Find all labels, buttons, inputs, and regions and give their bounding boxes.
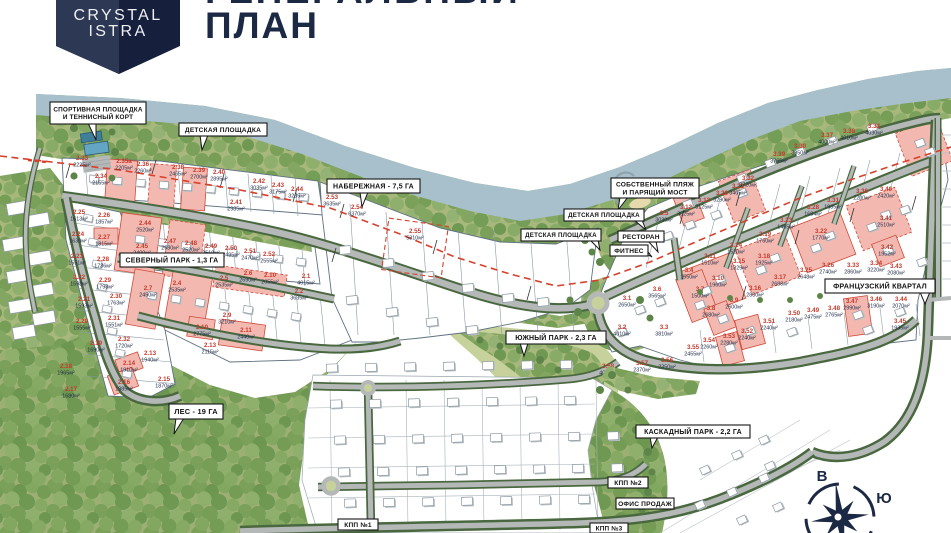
svg-text:СПОРТИВНАЯ ПЛОЩАДКА: СПОРТИВНАЯ ПЛОЩАДКА xyxy=(53,106,143,113)
svg-text:3.12: 3.12 xyxy=(680,204,693,211)
svg-text:ЛЕС - 19 ГА: ЛЕС - 19 ГА xyxy=(174,407,218,416)
svg-text:ДЕТСКАЯ ПЛОЩАДКА: ДЕТСКАЯ ПЛОЩАДКА xyxy=(185,127,261,134)
svg-text:2740м²: 2740м² xyxy=(819,270,837,276)
svg-text:2465м²: 2465м² xyxy=(169,172,187,178)
svg-text:5310м²: 5310м² xyxy=(406,236,424,242)
svg-text:2260м²: 2260м² xyxy=(700,345,718,351)
svg-text:2.38: 2.38 xyxy=(172,164,185,171)
svg-text:2470м²: 2470м² xyxy=(241,256,259,262)
svg-text:2.5: 2.5 xyxy=(220,275,229,282)
svg-text:2.21: 2.21 xyxy=(78,296,91,303)
svg-text:И ПАРЯЩИЙ МОСТ: И ПАРЯЩИЙ МОСТ xyxy=(622,187,687,196)
svg-text:1680м²: 1680м² xyxy=(62,394,80,400)
svg-text:3.6: 3.6 xyxy=(653,286,662,293)
svg-text:2.51: 2.51 xyxy=(244,248,257,255)
svg-text:3.16: 3.16 xyxy=(749,285,762,292)
svg-text:3.30: 3.30 xyxy=(794,143,807,150)
svg-text:1965м²: 1965м² xyxy=(57,371,75,377)
svg-text:2.44: 2.44 xyxy=(139,220,152,227)
svg-text:1940м²: 1940м² xyxy=(141,358,159,364)
svg-text:1720м²: 1720м² xyxy=(115,344,133,350)
svg-text:3.28: 3.28 xyxy=(807,204,820,211)
svg-text:2.44: 2.44 xyxy=(291,186,304,193)
svg-text:3.5: 3.5 xyxy=(660,210,669,217)
svg-text:2985м²: 2985м² xyxy=(227,207,245,213)
svg-text:2700м²: 2700м² xyxy=(190,175,208,181)
svg-text:3.52: 3.52 xyxy=(741,328,754,335)
svg-text:2420м²: 2420м² xyxy=(877,194,895,200)
svg-text:2680м²: 2680м² xyxy=(702,313,720,319)
svg-text:2.7: 2.7 xyxy=(144,285,153,292)
svg-text:ISTRA: ISTRA xyxy=(88,23,147,40)
svg-text:КПП №3: КПП №3 xyxy=(596,525,623,532)
svg-text:2.13: 2.13 xyxy=(144,350,157,357)
svg-text:3.36: 3.36 xyxy=(856,188,869,195)
svg-text:2440м²: 2440м² xyxy=(237,335,255,341)
svg-text:3.17: 3.17 xyxy=(774,274,787,281)
svg-text:3.47: 3.47 xyxy=(846,298,859,305)
svg-text:1857м²: 1857м² xyxy=(95,220,113,226)
svg-text:2.50: 2.50 xyxy=(225,245,238,252)
svg-text:РЕСТОРАН: РЕСТОРАН xyxy=(622,234,659,241)
svg-text:3210м²: 3210м² xyxy=(218,320,236,326)
svg-text:3635м²: 3635м² xyxy=(323,202,341,208)
svg-text:2200м²: 2200м² xyxy=(853,196,871,202)
svg-text:КПП №2: КПП №2 xyxy=(614,480,642,487)
svg-text:3.19: 3.19 xyxy=(759,231,772,238)
svg-text:3.51: 3.51 xyxy=(763,318,776,325)
svg-text:2.40: 2.40 xyxy=(213,169,226,176)
svg-text:2055м²: 2055м² xyxy=(261,280,279,286)
svg-text:3.13: 3.13 xyxy=(698,197,711,204)
svg-text:3.34: 3.34 xyxy=(870,260,883,267)
svg-text:1690м²: 1690м² xyxy=(87,348,105,354)
svg-text:4010м²: 4010м² xyxy=(613,332,631,338)
svg-text:3.18: 3.18 xyxy=(758,253,771,260)
svg-text:4015м²: 4015м² xyxy=(297,281,315,287)
svg-text:ЮЖНЫЙ ПАРК - 2,3 ГА: ЮЖНЫЙ ПАРК - 2,3 ГА xyxy=(515,333,597,342)
svg-text:1870м²: 1870м² xyxy=(155,384,173,390)
svg-text:2450м²: 2450м² xyxy=(139,293,157,299)
svg-text:4010м²: 4010м² xyxy=(840,136,858,142)
svg-text:2.35а: 2.35а xyxy=(116,158,132,165)
svg-text:3235м²: 3235м² xyxy=(288,194,306,200)
svg-text:3.46: 3.46 xyxy=(870,296,883,303)
svg-text:3765м²: 3765м² xyxy=(770,159,788,165)
svg-text:3405м²: 3405м² xyxy=(729,191,747,197)
svg-text:3.2: 3.2 xyxy=(618,324,627,331)
svg-text:2.33: 2.33 xyxy=(76,155,89,162)
svg-text:2.11: 2.11 xyxy=(240,327,252,334)
svg-text:3.55: 3.55 xyxy=(687,344,700,351)
svg-text:1555м²: 1555м² xyxy=(73,326,91,332)
svg-text:2690м²: 2690м² xyxy=(239,278,257,284)
svg-text:3.54: 3.54 xyxy=(703,337,716,344)
svg-text:3.37: 3.37 xyxy=(821,132,834,139)
svg-text:3.1: 3.1 xyxy=(623,295,632,302)
svg-text:1736м²: 1736м² xyxy=(94,264,112,270)
svg-text:3030м²: 3030м² xyxy=(655,218,673,224)
svg-text:2.26: 2.26 xyxy=(98,212,111,219)
svg-text:2.53: 2.53 xyxy=(326,194,339,201)
svg-text:2775м²: 2775м² xyxy=(193,332,211,338)
svg-text:2650м²: 2650м² xyxy=(618,303,636,309)
svg-text:2240м²: 2240м² xyxy=(738,336,756,342)
svg-text:1551м²: 1551м² xyxy=(68,261,86,267)
svg-text:2455м²: 2455м² xyxy=(684,352,702,358)
svg-text:3.45: 3.45 xyxy=(894,318,907,325)
svg-text:3.3: 3.3 xyxy=(660,324,669,331)
svg-text:2520м²: 2520м² xyxy=(136,228,154,234)
svg-text:3.39: 3.39 xyxy=(773,151,786,158)
svg-text:1925м²: 1925м² xyxy=(755,261,773,267)
svg-text:2.9: 2.9 xyxy=(223,312,232,319)
svg-text:2895м²: 2895м² xyxy=(210,177,228,183)
svg-text:2688м²: 2688м² xyxy=(771,282,789,288)
svg-text:2350м²: 2350м² xyxy=(658,365,676,371)
svg-text:2280м²: 2280м² xyxy=(720,341,738,347)
svg-text:3.22: 3.22 xyxy=(815,228,828,235)
svg-text:2.15: 2.15 xyxy=(158,376,171,383)
svg-text:1465м²: 1465м² xyxy=(777,225,795,231)
svg-text:2.39: 2.39 xyxy=(193,167,206,174)
svg-text:1815м²: 1815м² xyxy=(95,242,113,248)
svg-text:3.38: 3.38 xyxy=(843,128,856,135)
svg-text:3.43: 3.43 xyxy=(890,263,903,270)
svg-text:3.42: 3.42 xyxy=(881,244,894,251)
svg-text:2260м²: 2260м² xyxy=(134,169,152,175)
svg-text:3.57: 3.57 xyxy=(636,360,649,367)
svg-text:2.4: 2.4 xyxy=(173,280,182,287)
svg-text:СОБСТВЕННЫЙ ПЛЯЖ: СОБСТВЕННЫЙ ПЛЯЖ xyxy=(616,179,694,188)
svg-text:2.22: 2.22 xyxy=(73,274,86,281)
svg-text:3035м²: 3035м² xyxy=(250,186,268,192)
svg-text:3.31: 3.31 xyxy=(827,197,840,204)
svg-text:3565м²: 3565м² xyxy=(648,294,666,300)
svg-text:2.29: 2.29 xyxy=(99,277,112,284)
svg-text:3025м²: 3025м² xyxy=(677,212,695,218)
svg-text:НАБЕРЕЖНАЯ - 7,5 ГА: НАБЕРЕЖНАЯ - 7,5 ГА xyxy=(333,184,414,191)
svg-text:3.10: 3.10 xyxy=(712,275,725,282)
svg-text:2.27: 2.27 xyxy=(98,234,111,241)
svg-text:2510м²: 2510м² xyxy=(877,223,895,229)
svg-text:1985м²: 1985м² xyxy=(115,387,133,393)
svg-text:2.13: 2.13 xyxy=(204,342,217,349)
svg-text:2.23: 2.23 xyxy=(71,253,84,260)
svg-text:2.17: 2.17 xyxy=(65,386,78,393)
svg-text:2080м²: 2080м² xyxy=(887,271,905,277)
svg-text:3.26: 3.26 xyxy=(822,262,835,269)
svg-text:СЕВЕРНЫЙ ПАРК - 1,3 ГА: СЕВЕРНЫЙ ПАРК - 1,3 ГА xyxy=(126,256,219,265)
svg-text:2555м²: 2555м² xyxy=(260,259,278,265)
svg-text:2.41: 2.41 xyxy=(230,199,243,206)
svg-text:3.32: 3.32 xyxy=(742,175,755,182)
svg-text:2155м²: 2155м² xyxy=(92,181,110,187)
svg-text:1325м²: 1325м² xyxy=(730,266,748,272)
svg-text:2475м²: 2475м² xyxy=(804,315,822,321)
svg-text:2115м²: 2115м² xyxy=(201,350,218,356)
svg-text:CRYSTAL: CRYSTAL xyxy=(73,7,162,24)
svg-text:1550м²: 1550м² xyxy=(680,275,698,281)
svg-text:1551м²: 1551м² xyxy=(105,323,123,329)
svg-text:1613м²: 1613м² xyxy=(70,217,88,223)
svg-text:3175м²: 3175м² xyxy=(269,190,287,196)
svg-text:2180м²: 2180м² xyxy=(785,318,803,324)
svg-text:3.33: 3.33 xyxy=(868,123,881,130)
svg-text:2.36: 2.36 xyxy=(137,161,150,168)
svg-text:3.15: 3.15 xyxy=(733,258,746,265)
svg-text:2.48: 2.48 xyxy=(185,240,198,247)
svg-text:2.18: 2.18 xyxy=(60,363,73,370)
svg-text:3635м²: 3635м² xyxy=(290,296,308,302)
svg-text:3.44: 3.44 xyxy=(895,296,908,303)
svg-text:1684м²: 1684м² xyxy=(804,212,822,218)
svg-text:3720м²: 3720м² xyxy=(739,183,757,189)
svg-text:2225м²: 2225м² xyxy=(73,163,91,169)
svg-text:2765м²: 2765м² xyxy=(825,313,843,319)
svg-text:2990м²: 2990м² xyxy=(843,306,861,312)
svg-text:2.10: 2.10 xyxy=(196,324,209,331)
svg-text:2.55: 2.55 xyxy=(409,228,422,235)
svg-text:ДЕТСКАЯ ПЛОЩАДКА: ДЕТСКАЯ ПЛОЩАДКА xyxy=(568,212,640,219)
svg-text:ОФИС ПРОДАЖ: ОФИС ПРОДАЖ xyxy=(618,501,672,508)
svg-text:2580м²: 2580м² xyxy=(161,246,179,252)
svg-text:2.43: 2.43 xyxy=(272,182,285,189)
svg-text:2.1: 2.1 xyxy=(302,273,311,280)
svg-text:2535м²: 2535м² xyxy=(168,288,186,294)
svg-text:1910м²: 1910м² xyxy=(120,368,138,374)
svg-text:1598м²: 1598м² xyxy=(70,282,88,288)
svg-text:3.49: 3.49 xyxy=(807,307,820,314)
svg-text:3.50: 3.50 xyxy=(788,310,801,317)
svg-text:2.24: 2.24 xyxy=(72,231,85,238)
svg-text:3.41: 3.41 xyxy=(880,215,893,222)
svg-text:3.11: 3.11 xyxy=(704,253,716,260)
svg-text:2.47: 2.47 xyxy=(164,238,177,245)
svg-text:2860м²: 2860м² xyxy=(844,270,862,276)
svg-text:1960м²: 1960м² xyxy=(709,283,727,289)
svg-text:2.30: 2.30 xyxy=(110,293,123,300)
svg-text:2240м²: 2240м² xyxy=(760,326,778,332)
svg-text:3.4: 3.4 xyxy=(685,267,694,274)
svg-text:1760м²: 1760м² xyxy=(756,239,774,245)
svg-text:3.25: 3.25 xyxy=(800,267,813,274)
svg-text:3125м²: 3125м² xyxy=(695,205,713,211)
svg-text:2205м²: 2205м² xyxy=(115,166,133,172)
svg-text:ПЛАН: ПЛАН xyxy=(205,5,319,46)
svg-text:2.34: 2.34 xyxy=(95,173,108,180)
svg-text:4000м²: 4000м² xyxy=(818,140,836,146)
svg-text:2.16: 2.16 xyxy=(118,379,131,386)
svg-text:3.23: 3.23 xyxy=(780,217,793,224)
svg-text:2.42: 2.42 xyxy=(253,178,266,185)
svg-text:2.28: 2.28 xyxy=(97,256,110,263)
svg-text:2.6: 2.6 xyxy=(244,270,253,277)
svg-text:3290м²: 3290м² xyxy=(713,198,731,204)
svg-text:1935м²: 1935м² xyxy=(891,326,909,332)
svg-text:В: В xyxy=(817,468,828,485)
svg-text:ДЕТСКАЯ ПЛОЩАДКА: ДЕТСКАЯ ПЛОЩАДКА xyxy=(525,232,597,239)
svg-text:1593м²: 1593м² xyxy=(75,304,93,310)
svg-text:2.2: 2.2 xyxy=(295,288,304,295)
svg-text:ФРАНЦУЗСКИЙ КВАРТАЛ: ФРАНЦУЗСКИЙ КВАРТАЛ xyxy=(833,282,927,291)
svg-text:3850м²: 3850м² xyxy=(791,151,809,157)
svg-text:3810м²: 3810м² xyxy=(655,332,673,338)
svg-text:2535м²: 2535м² xyxy=(215,283,233,289)
svg-text:2.32: 2.32 xyxy=(118,336,131,343)
svg-text:3.40: 3.40 xyxy=(880,186,893,193)
svg-text:2.31: 2.31 xyxy=(108,315,121,322)
svg-text:3.8: 3.8 xyxy=(707,305,716,312)
svg-text:2648м²: 2648м² xyxy=(797,275,815,281)
svg-text:1510м²: 1510м² xyxy=(701,261,719,267)
svg-text:3220м²: 3220м² xyxy=(867,268,885,274)
svg-text:КПП №1: КПП №1 xyxy=(344,522,372,529)
svg-text:2070м²: 2070м² xyxy=(892,304,910,310)
svg-text:И ТЕННИСНЫЙ КОРТ: И ТЕННИСНЫЙ КОРТ xyxy=(63,112,133,121)
svg-text:3.48: 3.48 xyxy=(828,305,841,312)
svg-text:1798м²: 1798м² xyxy=(96,285,114,291)
svg-text:3.20: 3.20 xyxy=(716,190,729,197)
svg-text:3190м²: 3190м² xyxy=(867,304,885,310)
svg-text:2.20: 2.20 xyxy=(76,318,89,325)
svg-text:ФИТНЕС: ФИТНЕС xyxy=(614,248,644,255)
svg-text:1985м²: 1985м² xyxy=(824,205,842,211)
svg-text:2.45: 2.45 xyxy=(136,243,149,250)
svg-text:3.53: 3.53 xyxy=(723,333,736,340)
svg-text:2.52: 2.52 xyxy=(263,251,276,258)
svg-text:1520м²: 1520м² xyxy=(727,250,745,256)
svg-text:3.14: 3.14 xyxy=(730,242,743,249)
svg-text:1763м²: 1763м² xyxy=(107,301,125,307)
svg-text:2.49: 2.49 xyxy=(205,243,218,250)
svg-text:3.33: 3.33 xyxy=(847,262,860,269)
svg-text:1770м²: 1770м² xyxy=(812,236,830,242)
svg-text:2.19: 2.19 xyxy=(90,340,103,347)
svg-text:2.14: 2.14 xyxy=(123,360,136,367)
svg-text:2.25: 2.25 xyxy=(73,209,86,216)
svg-text:3.56: 3.56 xyxy=(661,357,674,364)
svg-text:1952м²: 1952м² xyxy=(878,252,896,258)
svg-text:2.10: 2.10 xyxy=(264,272,277,279)
svg-text:2495м²: 2495м² xyxy=(222,253,240,259)
svg-text:4030м²: 4030м² xyxy=(865,131,883,137)
svg-text:Ю: Ю xyxy=(876,490,891,507)
svg-text:1630м²: 1630м² xyxy=(69,239,87,245)
svg-text:2600м²: 2600м² xyxy=(725,305,743,311)
svg-text:6370м²: 6370м² xyxy=(348,212,366,218)
svg-text:КАСКАДНЫЙ ПАРК - 2,2 ГА: КАСКАДНЫЙ ПАРК - 2,2 ГА xyxy=(644,427,742,436)
